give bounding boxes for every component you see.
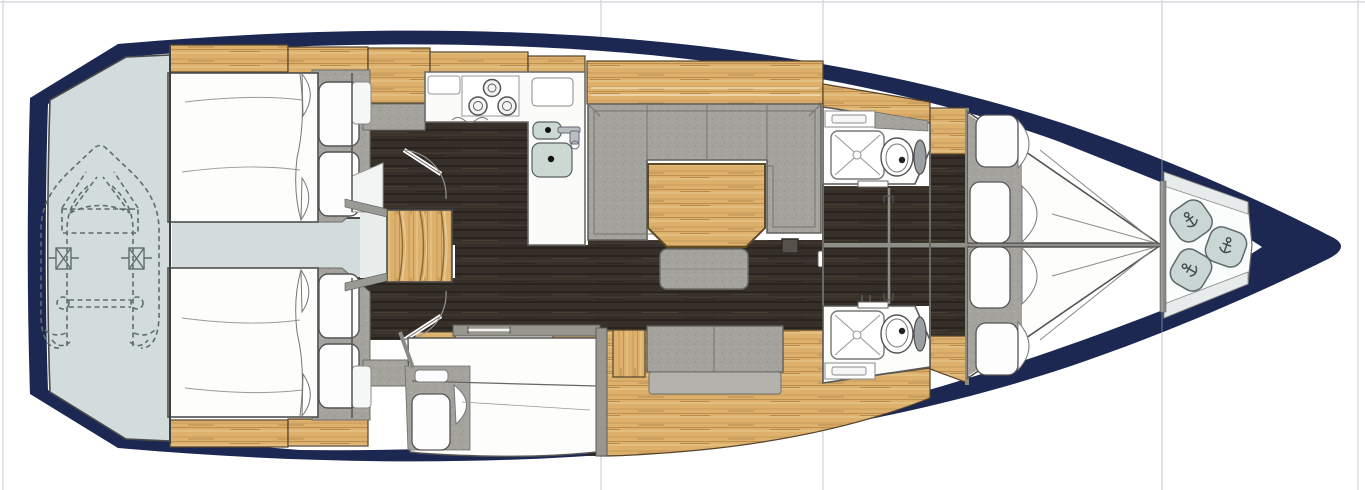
head-port bbox=[823, 107, 930, 187]
head-starboard bbox=[823, 295, 930, 383]
pillow bbox=[970, 247, 1010, 308]
pillow bbox=[976, 115, 1018, 167]
salon-table bbox=[648, 164, 765, 247]
settee bbox=[647, 326, 783, 394]
salon-sideboard bbox=[587, 61, 823, 104]
passage-end-strip bbox=[360, 210, 387, 282]
pillow bbox=[412, 394, 450, 450]
yacht-floor-plan bbox=[0, 0, 1365, 490]
single-berth bbox=[400, 325, 607, 456]
double-bed bbox=[168, 268, 318, 417]
companionway-steps bbox=[387, 210, 452, 282]
floor-hatch bbox=[782, 239, 798, 253]
double-bed bbox=[168, 73, 318, 222]
pillow bbox=[976, 323, 1018, 375]
pillow bbox=[970, 182, 1010, 243]
floor-plan-svg bbox=[0, 0, 1365, 490]
